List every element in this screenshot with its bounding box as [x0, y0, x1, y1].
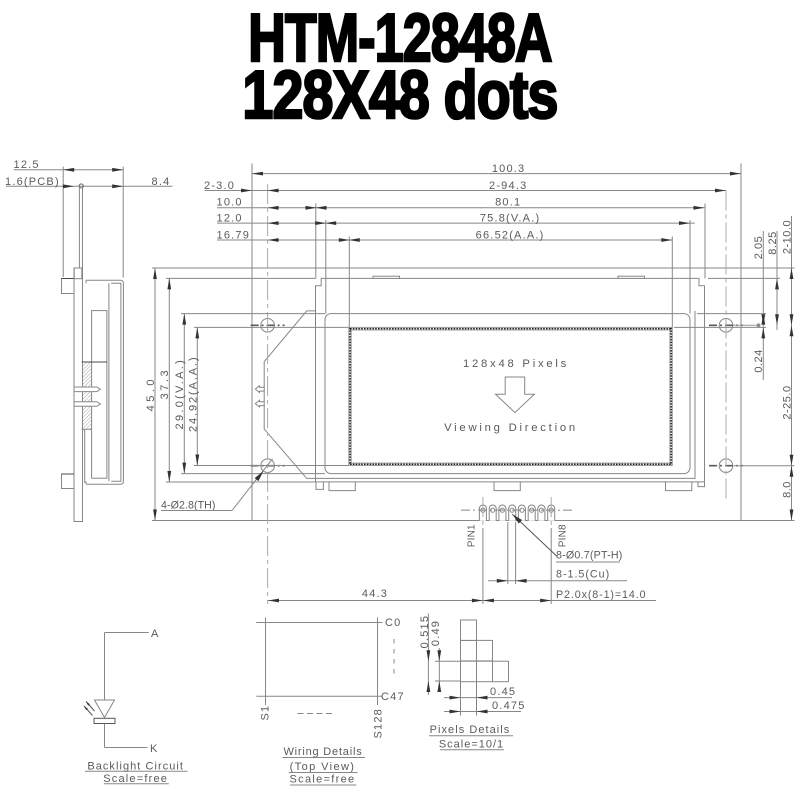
svg-text:66.52(A.A.): 66.52(A.A.)	[476, 229, 545, 241]
svg-text:0.45: 0.45	[490, 686, 516, 698]
svg-text:8-1.5(Cu): 8-1.5(Cu)	[556, 569, 610, 581]
svg-text:8.4: 8.4	[152, 176, 171, 188]
svg-text:10.0: 10.0	[217, 196, 243, 208]
svg-text:80.1: 80.1	[495, 196, 521, 208]
svg-text:0.475: 0.475	[492, 700, 526, 712]
svg-text:29.0(V.A.): 29.0(V.A.)	[174, 358, 186, 430]
svg-text:24.92(A.A.): 24.92(A.A.)	[187, 355, 199, 432]
svg-text:75.8(V.A.): 75.8(V.A.)	[480, 212, 541, 224]
svg-text:Scale=free: Scale=free	[103, 773, 168, 785]
svg-text:Scale=free: Scale=free	[290, 774, 356, 786]
svg-text:C0: C0	[385, 617, 401, 629]
svg-text:Pixels Details: Pixels Details	[430, 724, 511, 736]
svg-text:Scale=10/1: Scale=10/1	[439, 739, 504, 751]
svg-text:16.79: 16.79	[217, 229, 251, 241]
svg-text:Wiring Details: Wiring Details	[283, 746, 362, 758]
svg-text:1.6(PCB): 1.6(PCB)	[5, 176, 60, 188]
svg-text:C47: C47	[381, 691, 405, 703]
svg-text:8.0: 8.0	[781, 481, 793, 498]
svg-text:12.5: 12.5	[14, 159, 40, 171]
svg-text:(Top View): (Top View)	[290, 761, 356, 773]
svg-text:100.3: 100.3	[492, 163, 526, 175]
svg-text:2.05: 2.05	[753, 236, 765, 259]
svg-text:PIN1: PIN1	[467, 524, 478, 547]
svg-text:S128: S128	[372, 708, 384, 739]
svg-text:P2.0x(8-1)=14.0: P2.0x(8-1)=14.0	[556, 589, 646, 601]
svg-text:Backlight Circuit: Backlight Circuit	[87, 761, 184, 773]
svg-text:4-Ø2.8(TH): 4-Ø2.8(TH)	[161, 499, 216, 511]
svg-text:0.24: 0.24	[753, 349, 765, 372]
svg-text:8.25: 8.25	[767, 231, 779, 254]
svg-text:8-Ø0.7(PT-H): 8-Ø0.7(PT-H)	[556, 550, 623, 562]
svg-text:45.0: 45.0	[145, 376, 157, 411]
svg-text:0.49: 0.49	[430, 620, 442, 646]
svg-text:12.0: 12.0	[217, 213, 243, 225]
svg-text:2-25.0: 2-25.0	[781, 385, 793, 419]
svg-text:A: A	[151, 628, 160, 640]
svg-text:Viewing Direction: Viewing Direction	[444, 422, 578, 434]
svg-text:37.3: 37.3	[159, 368, 171, 399]
svg-text:44.3: 44.3	[362, 588, 388, 600]
svg-text:2-10.0: 2-10.0	[781, 220, 793, 254]
svg-text:K: K	[150, 743, 159, 755]
svg-text:PIN8: PIN8	[558, 524, 569, 547]
svg-text:S1: S1	[259, 705, 271, 721]
svg-text:2-3.0: 2-3.0	[204, 180, 235, 192]
svg-text:128x48 Pixels: 128x48 Pixels	[463, 358, 569, 370]
svg-text:2-94.3: 2-94.3	[489, 180, 527, 192]
